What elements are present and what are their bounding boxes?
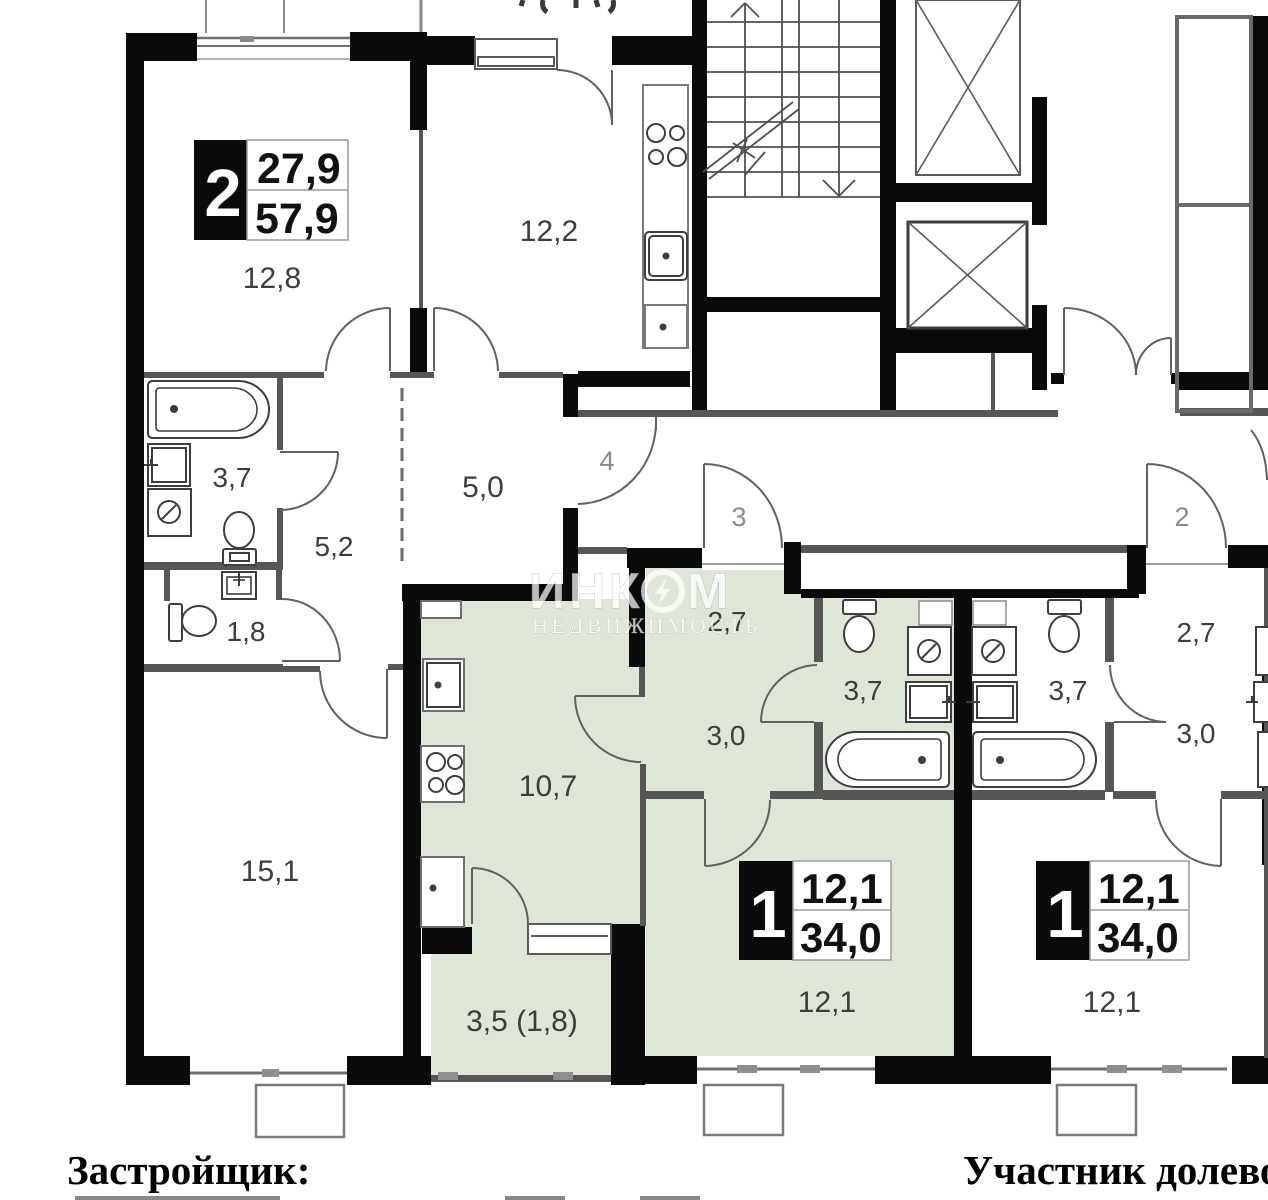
svg-text:57,9: 57,9 <box>255 195 339 243</box>
svg-text:3,5 (1,8): 3,5 (1,8) <box>466 1005 578 1038</box>
svg-text:15,1: 15,1 <box>241 855 299 888</box>
svg-text:2: 2 <box>1174 502 1189 532</box>
svg-text:4: 4 <box>599 446 614 476</box>
svg-text:1: 1 <box>1046 877 1083 952</box>
svg-text:12,1: 12,1 <box>1098 865 1180 912</box>
svg-text:Застройщик:: Застройщик: <box>67 1147 310 1193</box>
svg-text:3,7: 3,7 <box>844 675 883 706</box>
svg-text:1: 1 <box>749 877 786 952</box>
svg-text:Участник долево: Участник долево <box>963 1147 1268 1193</box>
svg-text:2,7: 2,7 <box>1177 617 1216 648</box>
svg-text:3,0: 3,0 <box>707 720 746 751</box>
svg-text:ИНК: ИНК <box>529 563 644 619</box>
svg-text:3,7: 3,7 <box>213 462 252 493</box>
svg-text:3: 3 <box>731 502 746 532</box>
svg-text:12,1: 12,1 <box>1083 986 1141 1019</box>
svg-text:1,8: 1,8 <box>227 616 266 647</box>
svg-text:27,9: 27,9 <box>257 145 341 193</box>
svg-text:12,2: 12,2 <box>520 215 578 248</box>
svg-text:3,7: 3,7 <box>1049 675 1088 706</box>
svg-text:12,1: 12,1 <box>801 865 883 912</box>
svg-text:НЕДВИЖИМОСТЬ: НЕДВИЖИМОСТЬ <box>532 613 761 638</box>
svg-text:2: 2 <box>204 156 241 231</box>
svg-text:3,0: 3,0 <box>1177 718 1216 749</box>
svg-text:34,0: 34,0 <box>1097 914 1179 961</box>
svg-text:5,0: 5,0 <box>462 471 504 504</box>
svg-text:5,2: 5,2 <box>315 531 354 562</box>
svg-text:12,8: 12,8 <box>243 262 301 295</box>
svg-text:10,7: 10,7 <box>519 770 577 803</box>
svg-text:М: М <box>687 563 729 619</box>
svg-text:34,0: 34,0 <box>800 914 882 961</box>
svg-text:12,1: 12,1 <box>798 986 856 1019</box>
